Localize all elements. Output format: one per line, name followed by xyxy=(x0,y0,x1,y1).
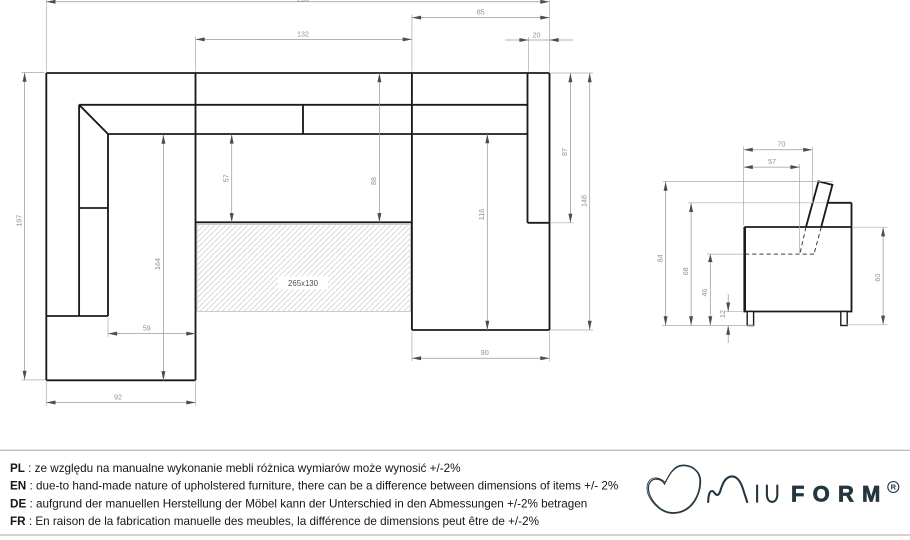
svg-text:85: 85 xyxy=(477,8,485,17)
svg-text:PL : ze względu na manualne wy: PL : ze względu na manualne wykonanie me… xyxy=(10,462,461,475)
svg-text:88: 88 xyxy=(369,177,378,185)
svg-text:92: 92 xyxy=(114,392,122,401)
svg-text:FR : En raison de la fabricati: FR : En raison de la fabrication manuell… xyxy=(10,515,539,528)
svg-text:EN : due-to hand-made nature o: EN : due-to hand-made nature of upholste… xyxy=(10,480,618,493)
svg-text:116: 116 xyxy=(477,209,486,220)
svg-text:68: 68 xyxy=(681,267,690,275)
svg-text:12: 12 xyxy=(718,310,727,318)
svg-text:87: 87 xyxy=(560,148,569,156)
svg-text:57: 57 xyxy=(221,174,230,182)
svg-text:164: 164 xyxy=(153,258,162,270)
svg-text:70: 70 xyxy=(777,140,785,149)
svg-text:84: 84 xyxy=(655,254,664,262)
svg-text:59: 59 xyxy=(143,324,151,333)
svg-text:46: 46 xyxy=(700,289,709,297)
svg-text:FORM: FORM xyxy=(791,482,889,507)
svg-text:148: 148 xyxy=(579,195,588,207)
svg-text:DE : aufgrund der manuellen He: DE : aufgrund der manuellen Herstellung … xyxy=(10,497,587,510)
svg-text:197: 197 xyxy=(15,215,24,227)
svg-text:57: 57 xyxy=(768,157,776,166)
svg-text:20: 20 xyxy=(533,30,541,39)
svg-text:90: 90 xyxy=(481,348,489,357)
svg-text:132: 132 xyxy=(297,29,309,38)
svg-text:R: R xyxy=(891,483,897,492)
svg-text:265: 265 xyxy=(297,0,309,4)
svg-text:265x130: 265x130 xyxy=(288,279,319,288)
svg-text:60: 60 xyxy=(873,274,882,282)
